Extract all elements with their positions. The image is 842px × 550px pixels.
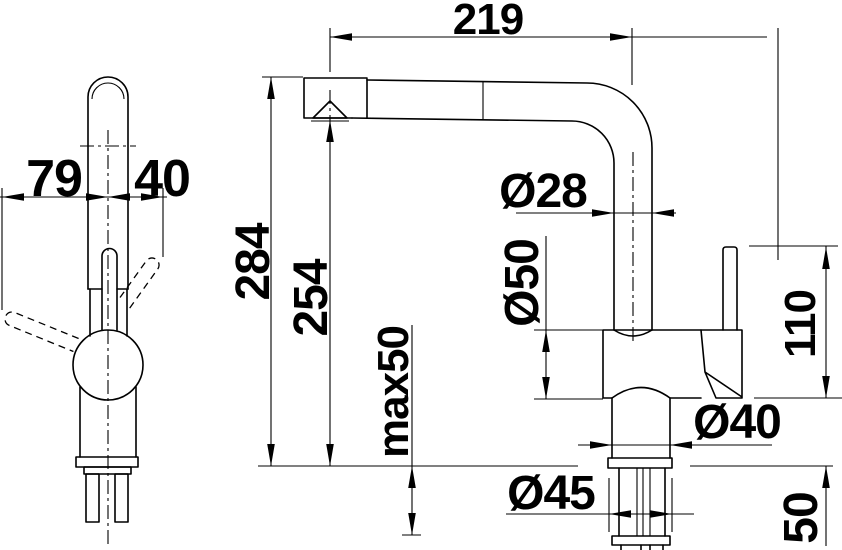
- dim-label-dia50: Ø50: [496, 239, 549, 327]
- dim-label-79: 79: [26, 150, 82, 208]
- dim-label-40: 40: [134, 150, 190, 208]
- dim-label-max50: max50: [369, 326, 418, 458]
- dim-label-dia45: Ø45: [507, 467, 595, 520]
- dim-label-dia40: Ø40: [693, 396, 781, 449]
- dim-label-50: 50: [775, 492, 828, 543]
- dim-label-284: 284: [227, 222, 280, 300]
- dim-label-254: 254: [285, 258, 338, 336]
- dim-label-110: 110: [776, 290, 825, 358]
- technical-drawing-canvas: 79 40 219: [0, 0, 842, 550]
- dim-label-219: 219: [453, 0, 523, 44]
- dim-label-dia28: Ø28: [499, 165, 587, 218]
- faucet-dimension-drawing: 79 40 219: [0, 0, 842, 550]
